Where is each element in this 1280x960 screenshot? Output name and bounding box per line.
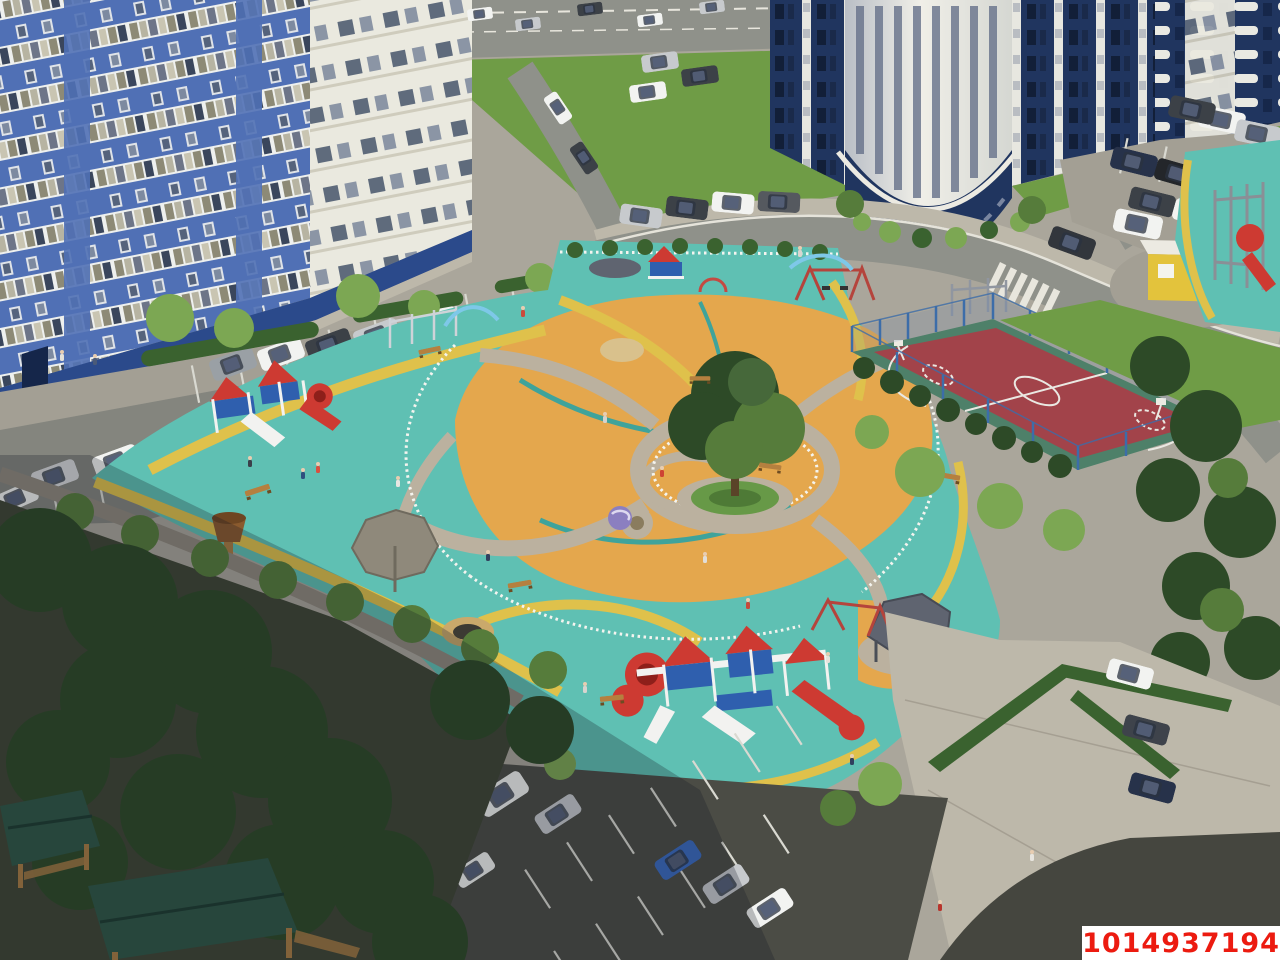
watermark-text: 1014937194 xyxy=(1082,928,1280,959)
screenshot-root: 1014937194 xyxy=(0,0,1280,960)
watermark-id: 1014937194 xyxy=(1082,926,1280,960)
aerial-render xyxy=(0,0,1280,960)
